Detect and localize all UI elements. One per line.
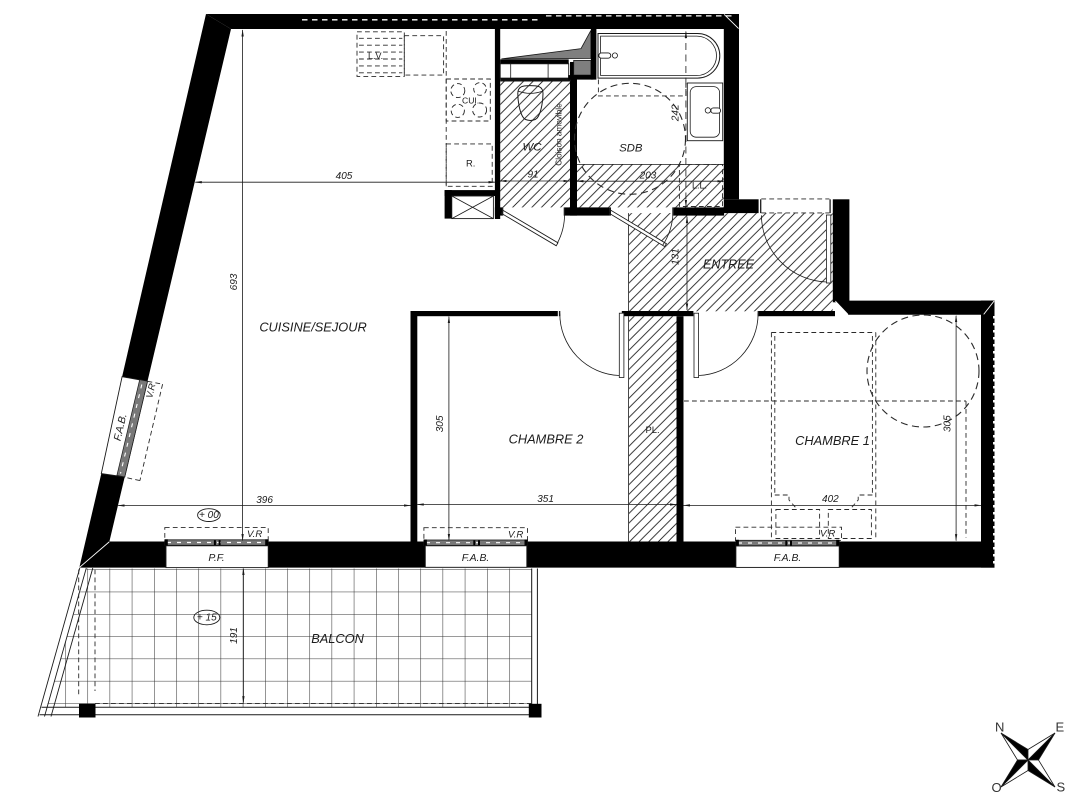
svg-text:ENTREE: ENTREE [703, 258, 755, 272]
svg-text:P.F.: P.F. [208, 553, 224, 564]
svg-text:203: 203 [639, 171, 657, 182]
svg-text:305: 305 [943, 415, 954, 432]
svg-text:405: 405 [336, 171, 353, 182]
svg-text:WC: WC [523, 142, 543, 154]
svg-text:V.R: V.R [820, 529, 835, 540]
svg-text:BALCON: BALCON [311, 631, 364, 646]
svg-text:396: 396 [256, 495, 273, 506]
svg-text:91: 91 [527, 170, 538, 181]
svg-text:O: O [992, 780, 1002, 795]
svg-text:+ 15: + 15 [197, 612, 217, 623]
svg-text:CHAMBRE 2: CHAMBRE 2 [509, 432, 584, 447]
svg-text:PL.: PL. [646, 424, 660, 435]
svg-text:L.L.: L.L. [692, 181, 707, 191]
svg-text:F.A.B.: F.A.B. [462, 553, 490, 564]
svg-text:L.V.: L.V. [368, 51, 383, 61]
svg-text:F.A.B.: F.A.B. [774, 553, 802, 564]
svg-text:305: 305 [435, 415, 446, 432]
svg-text:CHAMBRE 1: CHAMBRE 1 [795, 433, 870, 448]
svg-text:191: 191 [229, 627, 240, 644]
svg-text:V.R: V.R [247, 529, 262, 540]
svg-text:N: N [995, 720, 1004, 735]
svg-text:351: 351 [537, 494, 554, 505]
svg-text:131: 131 [671, 248, 682, 265]
svg-text:CUI.: CUI. [462, 96, 479, 106]
svg-text:S: S [1057, 780, 1066, 795]
svg-text:V.R: V.R [508, 530, 523, 541]
svg-text:CUISINE/SEJOUR: CUISINE/SEJOUR [259, 320, 366, 335]
svg-text:242: 242 [671, 104, 682, 122]
svg-text:E: E [1056, 720, 1065, 735]
svg-text:693: 693 [229, 273, 240, 290]
svg-text:SDB: SDB [619, 143, 643, 155]
svg-text:R.: R. [466, 158, 475, 169]
svg-text:Cloison amovible: Cloison amovible [555, 103, 564, 166]
svg-text:+ 00: + 00 [199, 510, 219, 521]
svg-text:402: 402 [822, 494, 839, 505]
